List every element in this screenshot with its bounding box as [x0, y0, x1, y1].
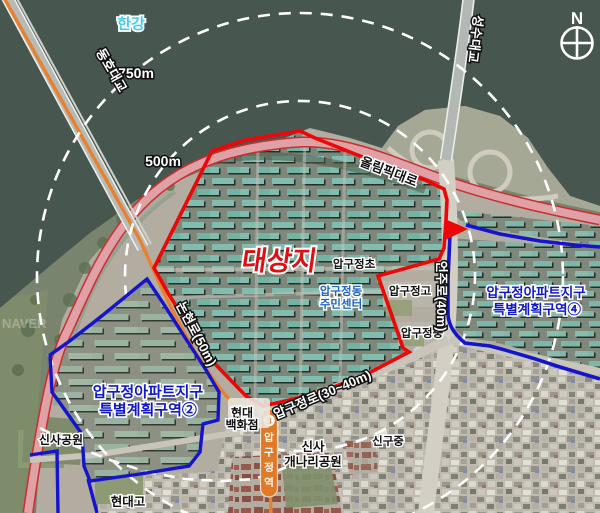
- svg-text:신구중: 신구중: [372, 435, 404, 448]
- svg-text:압구정고: 압구정고: [389, 285, 432, 298]
- svg-text:현대고: 현대고: [111, 495, 146, 509]
- svg-text:특별계획구역②: 특별계획구역②: [99, 402, 197, 419]
- svg-text:특별계획구역④: 특별계획구역④: [493, 302, 582, 317]
- svg-text:500m: 500m: [145, 153, 181, 169]
- svg-text:NAVER: NAVER: [2, 316, 47, 331]
- svg-text:압: 압: [264, 432, 274, 444]
- svg-text:역: 역: [264, 477, 274, 489]
- svg-text:신사: 신사: [301, 440, 325, 454]
- svg-text:언주로(40m): 언주로(40m): [434, 261, 449, 332]
- svg-text:신사공원: 신사공원: [39, 433, 83, 447]
- svg-text:한강: 한강: [117, 16, 145, 33]
- svg-text:압구정아파트지구: 압구정아파트지구: [486, 285, 585, 300]
- svg-text:대상지: 대상지: [240, 246, 319, 276]
- svg-text:정: 정: [264, 462, 274, 474]
- svg-text:구: 구: [264, 447, 274, 459]
- svg-text:주민센터: 주민센터: [320, 298, 362, 311]
- svg-text:압구정초: 압구정초: [333, 258, 376, 271]
- svg-text:개나리공원: 개나리공원: [284, 455, 342, 469]
- svg-text:N: N: [571, 9, 583, 28]
- svg-text:압구정동: 압구정동: [320, 285, 363, 298]
- svg-text:압구정아파트지구: 압구정아파트지구: [93, 384, 204, 401]
- svg-text:백화점: 백화점: [225, 418, 258, 432]
